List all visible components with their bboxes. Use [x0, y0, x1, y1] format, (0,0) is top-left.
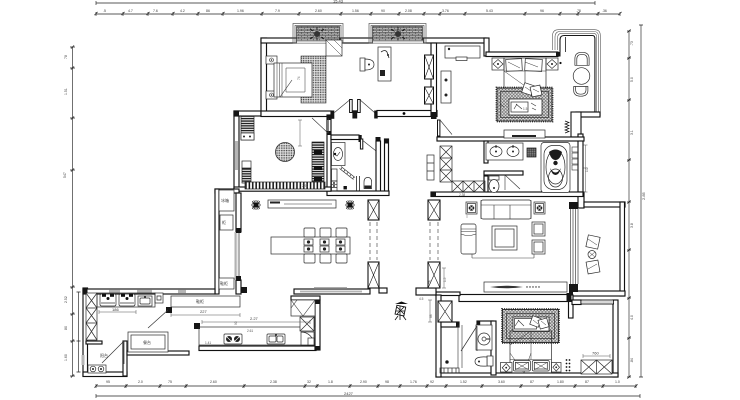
svg-text:冰箱: 冰箱 [221, 197, 229, 203]
svg-text:15.43: 15.43 [333, 0, 344, 4]
svg-text:3.60: 3.60 [498, 380, 505, 384]
svg-text:7.9: 7.9 [275, 9, 280, 13]
svg-text:1.76: 1.76 [410, 380, 417, 384]
svg-text:3.1: 3.1 [630, 130, 634, 135]
svg-text:1.52: 1.52 [460, 380, 467, 384]
svg-text:.84: .84 [630, 358, 634, 363]
svg-text:2.60: 2.60 [315, 9, 322, 13]
svg-text:5.43: 5.43 [486, 9, 493, 13]
svg-text:5.0: 5.0 [630, 77, 634, 82]
svg-text:2.38: 2.38 [459, 193, 465, 197]
svg-text:.5: .5 [103, 9, 106, 13]
svg-text:1.0: 1.0 [585, 167, 589, 172]
svg-text:2.90: 2.90 [360, 380, 367, 384]
svg-text:90: 90 [381, 9, 385, 13]
svg-text:2.60: 2.60 [210, 380, 217, 384]
svg-text:95: 95 [106, 380, 110, 384]
svg-text:4.7: 4.7 [128, 9, 133, 13]
svg-text:547: 547 [63, 172, 67, 178]
svg-text:1.60: 1.60 [64, 354, 68, 361]
svg-text:1.5: 1.5 [443, 277, 447, 282]
svg-text:98: 98 [385, 380, 389, 384]
svg-text:2.08: 2.08 [405, 9, 412, 13]
svg-text:1.5: 1.5 [523, 107, 528, 111]
svg-text:3.76: 3.76 [442, 9, 449, 13]
svg-text:2.38: 2.38 [270, 380, 277, 384]
svg-text:87: 87 [585, 380, 589, 384]
svg-text:2.61: 2.61 [247, 329, 253, 333]
svg-text:.73: .73 [630, 41, 634, 46]
svg-text:2.52: 2.52 [64, 296, 68, 303]
svg-text:90: 90 [234, 321, 238, 325]
svg-text:4.5: 4.5 [419, 297, 424, 301]
svg-text:阳台: 阳台 [100, 352, 108, 358]
svg-text:7.6: 7.6 [153, 9, 158, 13]
svg-text:86: 86 [206, 9, 210, 13]
svg-text:1.41: 1.41 [205, 341, 211, 345]
svg-text:1.0: 1.0 [615, 380, 620, 384]
svg-text:柜: 柜 [222, 219, 226, 225]
svg-text:1.80: 1.80 [557, 380, 564, 384]
svg-text:78: 78 [428, 280, 432, 284]
svg-text:.78: .78 [576, 9, 581, 13]
svg-text:88: 88 [429, 314, 433, 318]
svg-text:80: 80 [64, 326, 68, 330]
svg-text:1.8: 1.8 [328, 380, 333, 384]
svg-text:鞋柜: 鞋柜 [196, 298, 204, 304]
svg-text:2.27: 2.27 [250, 316, 259, 321]
svg-text:227: 227 [200, 309, 207, 314]
svg-text:2.85: 2.85 [641, 191, 646, 200]
svg-text:餐台: 餐台 [143, 339, 151, 345]
svg-text:1.56: 1.56 [352, 9, 359, 13]
svg-text:1.51: 1.51 [64, 88, 68, 95]
svg-text:2.90: 2.90 [302, 184, 308, 188]
svg-text:3.8: 3.8 [630, 223, 634, 228]
svg-text:78: 78 [64, 55, 68, 59]
svg-text:760: 760 [592, 351, 599, 356]
svg-text:186: 186 [112, 307, 119, 312]
svg-text:92: 92 [430, 380, 434, 384]
svg-text:87: 87 [530, 380, 534, 384]
svg-text:鞋柜: 鞋柜 [220, 280, 228, 286]
svg-text:96: 96 [540, 9, 544, 13]
svg-text:1.96: 1.96 [237, 9, 244, 13]
svg-text:32: 32 [307, 380, 311, 384]
svg-text:75: 75 [168, 380, 172, 384]
svg-text:4.2: 4.2 [180, 9, 185, 13]
svg-text:2.0: 2.0 [138, 380, 143, 384]
svg-text:.36: .36 [602, 9, 607, 13]
svg-text:4.0: 4.0 [630, 315, 634, 320]
svg-text:2427: 2427 [344, 391, 354, 396]
svg-text:74: 74 [297, 76, 301, 80]
